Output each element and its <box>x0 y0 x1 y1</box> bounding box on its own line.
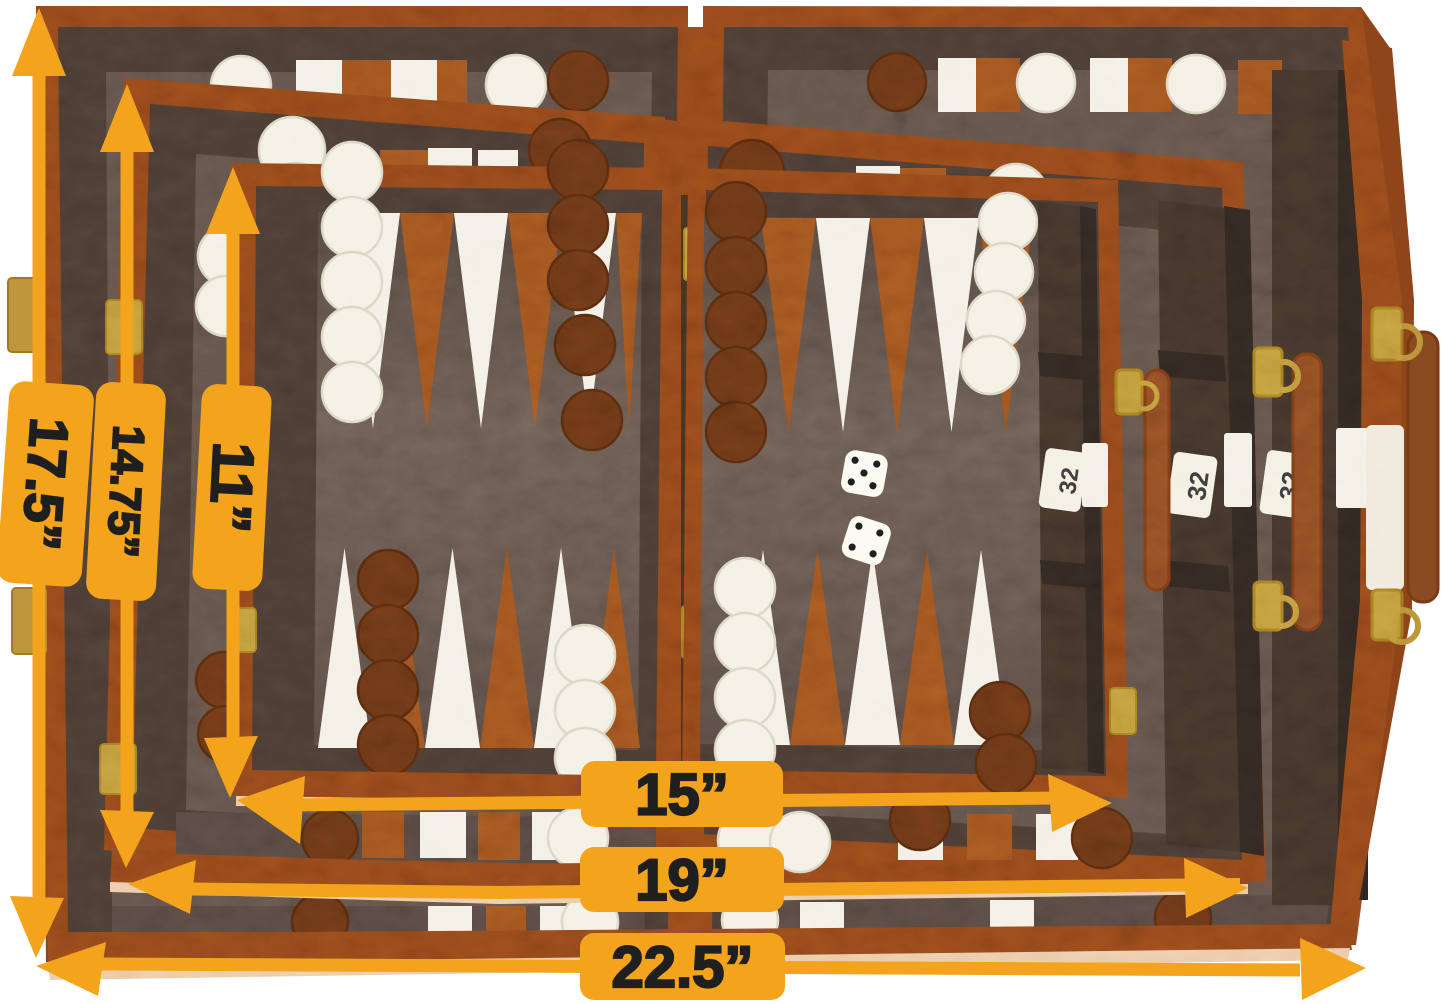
svg-text:15”: 15” <box>635 762 729 827</box>
svg-text:22.5”: 22.5” <box>612 935 754 1000</box>
svg-text:14.75”: 14.75” <box>97 424 153 558</box>
svg-text:17.5”: 17.5” <box>10 416 79 552</box>
svg-text:19”: 19” <box>635 848 729 913</box>
svg-text:11”: 11” <box>196 441 266 535</box>
